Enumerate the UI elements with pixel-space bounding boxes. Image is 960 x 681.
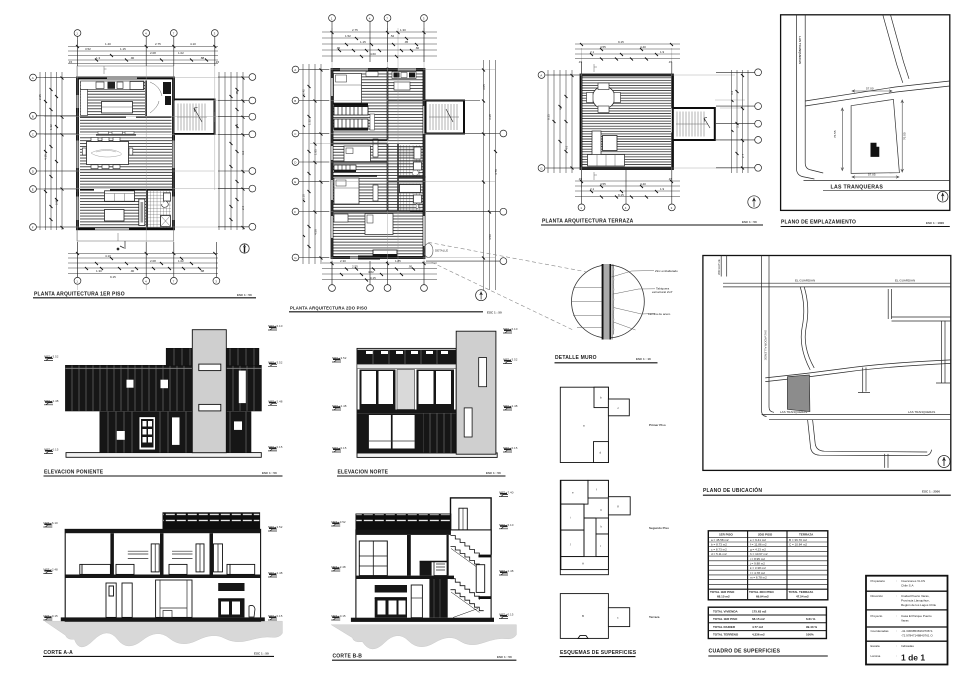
svg-text:PLANO DE UBICACIÓN: PLANO DE UBICACIÓN: [703, 486, 762, 494]
svg-text:2.42: 2.42: [302, 89, 306, 95]
svg-text:k = 3.38 m2: k = 3.38 m2: [750, 566, 766, 570]
svg-text:1.9: 1.9: [660, 50, 665, 54]
svg-text:.95: .95: [408, 265, 413, 269]
svg-text:Proyecto: Proyecto: [871, 614, 883, 618]
svg-text:Propietario: Propietario: [871, 579, 886, 583]
svg-text:NPT +2.48: NPT +2.48: [44, 399, 59, 403]
svg-text:estructural 2x4": estructural 2x4": [652, 290, 673, 294]
svg-text:A: A: [32, 76, 34, 80]
svg-text:E: E: [32, 188, 34, 192]
svg-text:2.75: 2.75: [352, 28, 358, 32]
svg-text:2DO PISO: 2DO PISO: [758, 533, 773, 537]
svg-text:Lámina: Lámina: [871, 654, 881, 658]
svg-text:NPT +3.52: NPT +3.52: [503, 358, 518, 362]
svg-text:3.05: 3.05: [482, 84, 486, 90]
svg-text:.95: .95: [404, 40, 409, 44]
svg-text:NPT +2.48: NPT +2.48: [268, 571, 283, 575]
svg-text:TERRAZA: TERRAZA: [799, 533, 814, 537]
svg-text:1.3: 1.3: [96, 56, 101, 60]
svg-text:B: B: [582, 614, 584, 618]
svg-text:ELEVACION PONIENTE: ELEVACION PONIENTE: [44, 470, 104, 476]
svg-text:ELEVACION NORTE: ELEVACION NORTE: [338, 470, 389, 476]
svg-text:f = 11.86 m2: f = 11.86 m2: [750, 543, 767, 547]
svg-text:3.2: 3.2: [241, 150, 245, 155]
svg-text:4.4: 4.4: [559, 105, 563, 110]
svg-text:F: F: [294, 210, 296, 214]
svg-text:57.05: 57.05: [868, 173, 876, 177]
svg-text:CORTE B-B: CORTE B-B: [333, 654, 363, 660]
svg-text:.88: .88: [200, 269, 205, 273]
svg-text:.90: .90: [336, 46, 341, 50]
svg-text:1.02: 1.02: [178, 259, 184, 263]
svg-text:Lamina de acero: Lamina de acero: [648, 312, 671, 316]
svg-text:NPT +6.10: NPT +6.10: [268, 324, 283, 328]
svg-text:9.15: 9.15: [110, 275, 116, 279]
svg-text:e = 9.41 m2: e = 9.41 m2: [750, 538, 766, 542]
svg-text:76.55: 76.55: [833, 130, 837, 138]
svg-text:EL GUARDIAN: EL GUARDIAN: [795, 279, 815, 283]
svg-text:.88: .88: [200, 56, 205, 60]
svg-text:1.3: 1.3: [235, 123, 239, 128]
svg-text:ESC 1 : 50: ESC 1 : 50: [237, 293, 252, 297]
svg-text:NPT +0.15: NPT +0.15: [503, 446, 518, 450]
svg-text:l = 4.78 m2: l = 4.78 m2: [750, 571, 765, 575]
svg-text:1.52: 1.52: [345, 34, 351, 38]
svg-text:b = 8.73 m2: b = 8.73 m2: [711, 543, 727, 547]
svg-text:ESC 1 : 50: ESC 1 : 50: [254, 651, 269, 655]
svg-text:100%: 100%: [806, 633, 814, 637]
svg-text:9.35: 9.35: [547, 114, 551, 120]
svg-text:NPT +2.48: NPT +2.48: [503, 404, 518, 408]
svg-text:NPT +2.48: NPT +2.48: [331, 565, 346, 569]
svg-text:LAS TRANQUERAS: LAS TRANQUERAS: [908, 410, 935, 414]
svg-text:EL GUARDIAN: EL GUARDIAN: [895, 279, 915, 283]
svg-text:4.15: 4.15: [44, 154, 48, 160]
svg-text:B: B: [294, 99, 296, 103]
svg-text:ESC 1 : 50: ESC 1 : 50: [262, 471, 277, 475]
svg-text:NPT +6.10: NPT +6.10: [43, 521, 58, 525]
svg-text:4.40: 4.40: [640, 182, 646, 186]
svg-text:B: B: [32, 114, 34, 118]
svg-text:TOTAL 1ER PISO: TOTAL 1ER PISO: [713, 617, 738, 621]
svg-text:68.15 m2: 68.15 m2: [717, 595, 730, 599]
svg-text:C = 10.84 m2: C = 10.84 m2: [789, 543, 807, 547]
svg-text:2.95: 2.95: [38, 94, 42, 100]
svg-text:NPT +0.15: NPT +0.15: [268, 445, 283, 449]
svg-text:CUADRO DE SUPERFICIES: CUADRO DE SUPERFICIES: [709, 649, 781, 655]
svg-text:Terraza: Terraza: [649, 615, 660, 619]
svg-text:TOTAL 2DO PISO: TOTAL 2DO PISO: [749, 590, 774, 594]
svg-text:1.15: 1.15: [120, 47, 126, 51]
svg-text:Primer Piso: Primer Piso: [649, 423, 666, 427]
svg-text:Varas: Varas: [901, 619, 909, 623]
svg-text:.15: .15: [578, 60, 583, 64]
svg-text:-41.33098538163708 S: -41.33098538163708 S: [901, 629, 932, 633]
svg-text:ESC 1 : 2500: ESC 1 : 2500: [922, 490, 940, 494]
svg-text:1 de 1: 1 de 1: [901, 653, 925, 663]
svg-text:47.54 m2: 47.54 m2: [796, 595, 809, 599]
svg-text:i = 8.95 m2: i = 8.95 m2: [750, 557, 765, 561]
svg-text:ESC 1 : 50: ESC 1 : 50: [486, 471, 501, 475]
svg-text:PLANTA ARQUITECTURA TERRAZA: PLANTA ARQUITECTURA TERRAZA: [542, 219, 634, 225]
svg-text:j = 9.88 m2: j = 9.88 m2: [749, 562, 765, 566]
svg-text:1.9: 1.9: [660, 187, 665, 191]
svg-text:2.55: 2.55: [352, 265, 358, 269]
svg-text:2.7: 2.7: [741, 153, 745, 158]
svg-text:Región de los Lagos Chile: Región de los Lagos Chile: [901, 603, 936, 607]
svg-text:A: A: [540, 74, 542, 78]
svg-text:1.02: 1.02: [178, 51, 184, 55]
svg-text:1.85: 1.85: [314, 149, 318, 155]
svg-text:Dirección: Dirección: [871, 594, 884, 598]
svg-text:a = 45.58 m2: a = 45.58 m2: [711, 538, 729, 542]
svg-text:4.77 m2: 4.77 m2: [752, 625, 763, 629]
svg-text:TOTAL TERRENO: TOTAL TERRENO: [713, 633, 739, 637]
svg-text:.15: .15: [215, 60, 220, 64]
svg-text:NPT +2.48: NPT +2.48: [499, 569, 514, 573]
svg-text:1.32: 1.32: [308, 119, 312, 125]
svg-text:Segundo Piso: Segundo Piso: [649, 526, 669, 530]
svg-text:.90: .90: [130, 56, 135, 60]
svg-text:2.08: 2.08: [150, 51, 156, 55]
svg-text:.15: .15: [68, 60, 73, 64]
svg-text:DETALLE MURO: DETALLE MURO: [555, 355, 597, 361]
svg-text:4,336 m2: 4,336 m2: [752, 633, 765, 637]
svg-text:4.40: 4.40: [640, 45, 646, 49]
svg-text:NPT +7.40: NPT +7.40: [499, 491, 514, 495]
svg-text:.15: .15: [578, 177, 583, 181]
svg-text:Coordenadas: Coordenadas: [871, 629, 890, 633]
svg-text:3.1: 3.1: [736, 123, 740, 128]
svg-text:2.30: 2.30: [340, 259, 346, 263]
svg-text:3.10: 3.10: [302, 194, 306, 200]
svg-text:1.85: 1.85: [395, 259, 401, 263]
svg-text:69.94 m2: 69.94 m2: [756, 595, 769, 599]
svg-text:Escala: Escala: [871, 644, 880, 648]
svg-text:ESC 1 : 50: ESC 1 : 50: [487, 311, 502, 315]
svg-text:68.15 m2: 68.15 m2: [752, 617, 765, 621]
svg-text:1.32: 1.32: [49, 124, 53, 130]
svg-text:Indicadas: Indicadas: [901, 644, 914, 648]
svg-text:4.60: 4.60: [370, 52, 376, 56]
svg-text:NPT +0.15: NPT +0.15: [331, 614, 346, 618]
svg-text:175.63 m2: 175.63 m2: [752, 609, 767, 613]
svg-text:A: A: [294, 68, 296, 72]
svg-text:2.75: 2.75: [155, 42, 161, 46]
svg-text:NPT +6.10: NPT +6.10: [503, 327, 518, 331]
svg-text:57.00: 57.00: [866, 87, 874, 91]
svg-text:E: E: [294, 180, 296, 184]
svg-text:Zinc emballetado: Zinc emballetado: [655, 269, 678, 273]
svg-text:4.6: 4.6: [565, 145, 569, 150]
svg-text:Inversiones VLCS: Inversiones VLCS: [901, 579, 925, 583]
svg-text:.60: .60: [415, 46, 420, 50]
svg-text:.52: .52: [390, 34, 395, 38]
svg-text:NPT +2.48: NPT +2.48: [332, 404, 347, 408]
svg-text:NPT +0.15: NPT +0.15: [43, 614, 58, 618]
svg-text:NPT +6.10: NPT +6.10: [499, 523, 514, 527]
svg-text:6.61 %: 6.61 %: [806, 617, 816, 621]
svg-text:Chile S.A: Chile S.A: [901, 583, 914, 587]
svg-text:ESQUEMAS DE SUPERFICIES: ESQUEMAS DE SUPERFICIES: [560, 650, 637, 656]
svg-text:TOTAL TERRAZA: TOTAL TERRAZA: [789, 590, 815, 594]
svg-text:3.28: 3.28: [488, 114, 492, 120]
svg-text:TOTAL RADIER: TOTAL RADIER: [713, 625, 736, 629]
svg-text:LAS TRANQUERAS: LAS TRANQUERAS: [798, 36, 802, 64]
svg-text:Ciudad Puerto Varas,: Ciudad Puerto Varas,: [901, 594, 930, 598]
svg-text:1.30: 1.30: [400, 28, 406, 32]
svg-text:SALVADOR ALLENDE: SALVADOR ALLENDE: [764, 330, 768, 360]
svg-text:2.88: 2.88: [55, 199, 59, 205]
svg-text:c = 8.73 m2: c = 8.73 m2: [711, 547, 727, 551]
svg-text:A: A: [582, 562, 584, 566]
svg-text:NPT +0.15: NPT +0.15: [44, 448, 59, 452]
svg-text:DETALLE: DETALLE: [435, 249, 448, 253]
svg-text:9.15: 9.15: [618, 193, 624, 197]
svg-text:4.55: 4.55: [600, 45, 606, 49]
svg-text:NPT +3.52: NPT +3.52: [331, 520, 346, 524]
svg-text:PLANO DE EMPLAZAMIENTO: PLANO DE EMPLAZAMIENTO: [781, 220, 856, 226]
svg-text:ESC 1 : 50: ESC 1 : 50: [497, 655, 512, 659]
svg-text:NPT +2.48: NPT +2.48: [268, 399, 283, 403]
svg-text:NPT +0.15: NPT +0.15: [332, 446, 347, 450]
svg-text:d = 5.11 m2: d = 5.11 m2: [711, 552, 727, 556]
svg-text:4.58: 4.58: [314, 229, 318, 235]
svg-text:4.10: 4.10: [105, 254, 111, 258]
svg-text:4.78: 4.78: [494, 169, 498, 175]
svg-text:ESC 1 : 50: ESC 1 : 50: [742, 220, 757, 224]
svg-text:NPT +3.52: NPT +3.52: [332, 356, 347, 360]
svg-text:PLANTA ARQUITECTURA 2DO PISO: PLANTA ARQUITECTURA 2DO PISO: [290, 306, 368, 311]
svg-text:3.2: 3.2: [730, 90, 734, 95]
svg-text:.95: .95: [235, 90, 239, 95]
svg-text:PLANTA ARQUITECTURA 1ER PISO: PLANTA ARQUITECTURA 1ER PISO: [34, 292, 125, 298]
svg-text:h = 10.67 m2: h = 10.67 m2: [750, 552, 768, 556]
svg-text:TOTAL 1ER PISO: TOTAL 1ER PISO: [710, 590, 735, 594]
svg-text:WICHATUE: WICHATUE: [717, 259, 721, 275]
svg-text:.90: .90: [130, 269, 135, 273]
svg-text:NPT +2.48: NPT +2.48: [43, 568, 58, 572]
svg-text:NPT +3.52: NPT +3.52: [268, 360, 283, 364]
svg-text:1.30: 1.30: [96, 269, 102, 273]
svg-text:NPT +0.15: NPT +0.15: [499, 613, 514, 617]
svg-text:99.43 %: 99.43 %: [806, 625, 817, 629]
svg-text:TOTAL VIVIENDA: TOTAL VIVIENDA: [713, 609, 739, 613]
svg-text:1.40: 1.40: [105, 42, 111, 46]
svg-text:76.00: 76.00: [903, 132, 907, 140]
svg-text:4.50: 4.50: [488, 234, 492, 240]
svg-text:F: F: [32, 226, 34, 230]
svg-text:1ER PISO: 1ER PISO: [719, 533, 734, 537]
svg-text:NPT +0.15: NPT +0.15: [268, 614, 283, 618]
svg-text:4.10: 4.10: [190, 42, 196, 46]
svg-text:NPT +3.52: NPT +3.52: [268, 525, 283, 529]
svg-text:2.1: 2.1: [590, 50, 595, 54]
svg-text:NPT +3.52: NPT +3.52: [44, 355, 59, 359]
svg-text:m = 6.78 m2: m = 6.78 m2: [750, 576, 767, 580]
svg-text:LAS TRANQUERAS: LAS TRANQUERAS: [831, 184, 884, 190]
svg-text:B = 36.70 m2: B = 36.70 m2: [789, 538, 807, 542]
svg-text:1.15: 1.15: [360, 40, 366, 44]
svg-text:ESC 1 : 1000: ESC 1 : 1000: [926, 221, 944, 225]
svg-text:2.1: 2.1: [590, 187, 595, 191]
svg-text:2.6: 2.6: [241, 205, 245, 210]
svg-text:CORTE A-A: CORTE A-A: [44, 650, 74, 656]
svg-text:3.52: 3.52: [85, 47, 91, 51]
svg-text:Provincia Llanquihue,: Provincia Llanquihue,: [901, 599, 930, 603]
svg-text:g = 4.23 m2: g = 4.23 m2: [750, 547, 766, 551]
svg-text:-72.97847148840761 O: -72.97847148840761 O: [901, 634, 933, 638]
svg-text:Casa El Parque Puerto: Casa El Parque Puerto: [901, 614, 932, 618]
svg-text:2.08: 2.08: [150, 259, 156, 263]
svg-text:9.15: 9.15: [370, 276, 376, 280]
svg-text:4.62: 4.62: [368, 270, 374, 274]
svg-text:9.15: 9.15: [618, 40, 624, 44]
svg-text:ESC 1 : 10: ESC 1 : 10: [636, 357, 651, 361]
svg-text:4.55: 4.55: [600, 182, 606, 186]
